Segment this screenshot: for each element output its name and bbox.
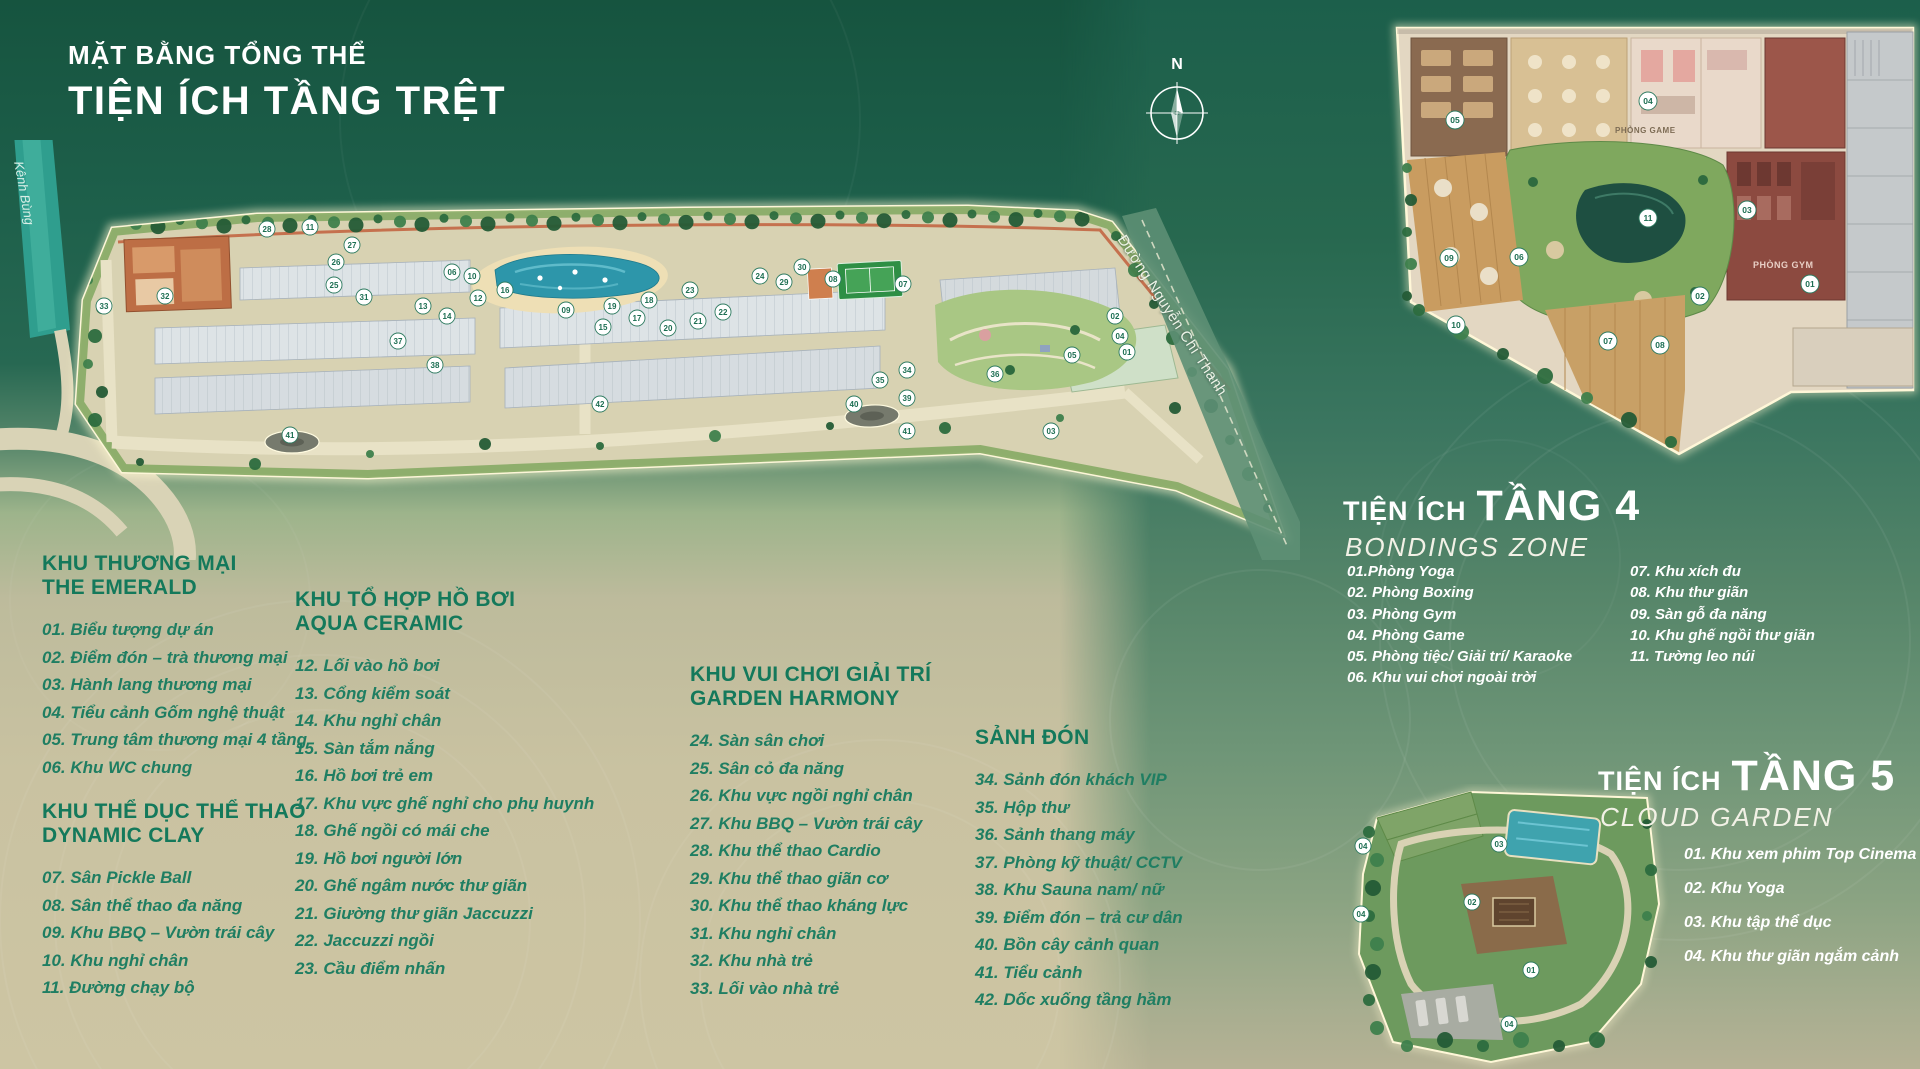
plan-marker-03: 03 <box>1491 836 1507 852</box>
legend-item: 37. Phòng kỹ thuật/ CCTV <box>975 849 1295 877</box>
tree <box>1642 911 1652 921</box>
plan-marker-25: 25 <box>326 277 342 293</box>
plan-marker-04: 04 <box>1639 92 1657 110</box>
tang5-item: 04. Khu thư giãn ngắm cảnh <box>1684 940 1916 974</box>
legend-item: 23. Cầu điểm nhấn <box>295 955 615 983</box>
svg-text:18: 18 <box>645 296 654 305</box>
legend-item: 12. Lối vào hồ bơi <box>295 652 615 680</box>
tree <box>1413 304 1425 316</box>
tree <box>1034 209 1043 218</box>
legend-group-aqua-ceramic: KHU TỔ HỢP HỒ BƠI AQUA CERAMIC 12. Lối v… <box>295 588 615 982</box>
tree <box>836 211 845 220</box>
tree <box>877 213 892 228</box>
tang4-item: 03. Phòng Gym <box>1347 604 1572 625</box>
legend-group-garden-harmony: KHU VUI CHƠI GIẢI TRÍ GARDEN HARMONY 24.… <box>690 663 1010 1002</box>
legend-item-list: 24. Sàn sân chơi25. Sân cỏ đa năng26. Kh… <box>690 727 1010 1002</box>
t4-bottom-room <box>1793 328 1913 386</box>
plan-marker-07: 07 <box>895 276 911 292</box>
tree <box>1645 956 1657 968</box>
plan-marker-39: 39 <box>899 390 915 406</box>
plan-marker-33: 33 <box>96 298 112 314</box>
plan-marker-10: 10 <box>464 268 480 284</box>
plan-marker-36: 36 <box>987 366 1003 382</box>
plan-marker-11: 11 <box>302 219 318 235</box>
plan-marker-29: 29 <box>776 274 792 290</box>
legend-item: 27. Khu BBQ – Vườn trái cây <box>690 810 1010 838</box>
plan-marker-28: 28 <box>259 221 275 237</box>
plan-marker-31: 31 <box>356 289 372 305</box>
svg-text:04: 04 <box>1116 332 1125 341</box>
plan-marker-24: 24 <box>752 268 768 284</box>
tree <box>811 214 826 229</box>
tang5-floor-number: TẦNG 5 <box>1732 752 1896 800</box>
tree <box>902 210 911 219</box>
svg-text:04: 04 <box>1505 1020 1514 1029</box>
legend-item: 32. Khu nhà trẻ <box>690 947 1010 975</box>
tree <box>790 212 802 224</box>
plan-marker-37: 37 <box>390 333 406 349</box>
svg-text:40: 40 <box>850 400 859 409</box>
tree <box>826 422 834 430</box>
legend-item: 21. Giường thư giãn Jaccuzzi <box>295 900 615 928</box>
tree <box>1370 1021 1384 1035</box>
legend-item: 35. Hộp thư <box>975 794 1295 822</box>
plan-marker-41: 41 <box>282 427 298 443</box>
legend-item: 28. Khu thể thao Cardio <box>690 837 1010 865</box>
svg-text:10: 10 <box>1451 320 1461 330</box>
plan-marker-18: 18 <box>641 292 657 308</box>
plan-marker-04: 04 <box>1112 328 1128 344</box>
plan-marker-02: 02 <box>1464 894 1480 910</box>
plan-marker-13: 13 <box>415 298 431 314</box>
ground-floor-site-plan: 3332281127262531373806101213141609151917… <box>0 140 1300 560</box>
legend-item: 39. Điểm đón – trả cư dân <box>975 904 1295 932</box>
plan-marker-12: 12 <box>470 290 486 306</box>
tree <box>724 213 736 225</box>
tree <box>1581 392 1593 404</box>
tree <box>1589 1032 1605 1048</box>
tree <box>704 212 713 221</box>
legend-item: 17. Khu vực ghế nghỉ cho phụ huynh <box>295 790 615 818</box>
tree <box>136 458 144 466</box>
tree <box>547 216 562 231</box>
tree <box>440 214 449 223</box>
plan-marker-09: 09 <box>1440 249 1458 267</box>
svg-text:33: 33 <box>100 302 109 311</box>
svg-text:28: 28 <box>263 225 272 234</box>
plan-marker-20: 20 <box>660 320 676 336</box>
tree <box>374 214 383 223</box>
plan-marker-10: 10 <box>1447 316 1465 334</box>
svg-text:15: 15 <box>599 323 608 332</box>
floor-plan-tang4: PHÒNG GAME PHÒNG GYM <box>1385 0 1920 465</box>
tree <box>1437 1032 1453 1048</box>
t4-gym-label: PHÒNG GYM <box>1753 259 1814 270</box>
plan-marker-15: 15 <box>595 319 611 335</box>
legend-item: 19. Hồ bơi người lớn <box>295 845 615 873</box>
svg-text:20: 20 <box>664 324 673 333</box>
tree <box>1665 436 1677 448</box>
plan-marker-07: 07 <box>1599 332 1617 350</box>
plan-marker-21: 21 <box>690 313 706 329</box>
page-title-line2: TIỆN ÍCH TẦNG TRỆT <box>68 79 506 124</box>
legend-item: 18. Ghế ngồi có mái che <box>295 817 615 845</box>
tang5-item: 03. Khu tập thể dục <box>1684 906 1916 940</box>
plan-marker-01: 01 <box>1119 344 1135 360</box>
svg-text:07: 07 <box>1603 336 1613 346</box>
legend-item: 31. Khu nghỉ chân <box>690 920 1010 948</box>
t4-meeting-room <box>1411 38 1507 156</box>
svg-text:36: 36 <box>991 370 1000 379</box>
tree <box>613 215 628 230</box>
tree <box>939 422 951 434</box>
svg-text:22: 22 <box>719 308 728 317</box>
legend-item: 42. Dốc xuống tầng hầm <box>975 986 1295 1014</box>
plan-marker-05: 05 <box>1064 347 1080 363</box>
legend-item: 22. Jaccuzzi ngồi <box>295 927 615 955</box>
svg-text:25: 25 <box>330 281 339 290</box>
plan-marker-02: 02 <box>1107 308 1123 324</box>
tree <box>242 215 251 224</box>
tree <box>394 216 406 228</box>
svg-text:24: 24 <box>756 272 765 281</box>
legend-item: 16. Hồ bơi trẻ em <box>295 762 615 790</box>
svg-text:29: 29 <box>780 278 789 287</box>
plan-marker-01: 01 <box>1523 962 1539 978</box>
tang4-item: 09. Sàn gỗ đa năng <box>1630 604 1815 625</box>
legend-item: 24. Sàn sân chơi <box>690 727 1010 755</box>
svg-text:30: 30 <box>798 263 807 272</box>
tang4-list-col1: 01.Phòng Yoga02. Phòng Boxing03. Phòng G… <box>1347 561 1572 689</box>
svg-text:10: 10 <box>468 272 477 281</box>
svg-text:11: 11 <box>1644 213 1653 223</box>
tang4-item: 10. Khu ghế ngồi thư giãn <box>1630 625 1815 646</box>
plan-marker-09: 09 <box>558 302 574 318</box>
tree <box>481 216 496 231</box>
plan-marker-06: 06 <box>444 264 460 280</box>
svg-text:08: 08 <box>1655 340 1665 350</box>
page-title-line1: MẶT BẰNG TỔNG THỂ <box>68 40 506 71</box>
plan-marker-16: 16 <box>497 282 513 298</box>
plan-marker-08: 08 <box>1651 336 1669 354</box>
tree <box>1497 348 1509 360</box>
svg-text:41: 41 <box>903 427 912 436</box>
tree <box>1169 402 1181 414</box>
tang4-item: 05. Phòng tiệc/ Giải trí/ Karaoke <box>1347 646 1572 667</box>
tree <box>1401 1040 1413 1052</box>
plan-marker-40: 40 <box>846 396 862 412</box>
svg-text:41: 41 <box>286 431 295 440</box>
svg-text:35: 35 <box>876 376 885 385</box>
tree <box>770 211 779 220</box>
svg-text:01: 01 <box>1123 348 1132 357</box>
svg-text:19: 19 <box>608 302 617 311</box>
plan-marker-03: 03 <box>1738 201 1756 219</box>
legend-item: 36. Sảnh thang máy <box>975 821 1295 849</box>
tree <box>415 217 430 232</box>
svg-text:02: 02 <box>1468 898 1477 907</box>
tang5-list: 01. Khu xem phim Top Cinema02. Khu Yoga0… <box>1684 838 1916 974</box>
legend-item: 33. Lối vào nhà trẻ <box>690 975 1010 1003</box>
tree <box>922 211 934 223</box>
tree <box>328 216 340 228</box>
tree <box>88 329 102 343</box>
svg-text:16: 16 <box>501 286 510 295</box>
tree <box>592 214 604 226</box>
plan-marker-26: 26 <box>328 254 344 270</box>
plan-marker-34: 34 <box>899 362 915 378</box>
svg-text:02: 02 <box>1111 312 1120 321</box>
plan-marker-35: 35 <box>872 372 888 388</box>
tree <box>638 212 647 221</box>
tree <box>1056 414 1064 422</box>
legend-item: 26. Khu vực ngồi nghỉ chân <box>690 782 1010 810</box>
svg-text:08: 08 <box>829 275 838 284</box>
tree <box>658 214 670 226</box>
svg-text:07: 07 <box>899 280 908 289</box>
svg-text:03: 03 <box>1742 205 1752 215</box>
legend-item: 13. Cổng kiểm soát <box>295 680 615 708</box>
plan-marker-30: 30 <box>794 259 810 275</box>
svg-text:26: 26 <box>332 258 341 267</box>
svg-text:09: 09 <box>1444 253 1454 263</box>
tree <box>526 215 538 227</box>
legend-item: 15. Sàn tắm nắng <box>295 735 615 763</box>
compass-north-label: N <box>1132 56 1222 74</box>
svg-text:31: 31 <box>360 293 369 302</box>
plan-marker-23: 23 <box>682 282 698 298</box>
tang4-pretitle: TIỆN ÍCH <box>1343 496 1467 526</box>
svg-text:32: 32 <box>161 292 170 301</box>
tree <box>366 450 374 458</box>
plan-marker-27: 27 <box>344 237 360 253</box>
legend-item: 40. Bồn cây cảnh quan <box>975 931 1295 959</box>
tree <box>856 212 868 224</box>
plan-marker-05: 05 <box>1446 111 1464 129</box>
tree <box>479 438 491 450</box>
legend-item: 29. Khu thể thao giãn cơ <box>690 865 1010 893</box>
tree <box>1054 210 1066 222</box>
plan-marker-22: 22 <box>715 304 731 320</box>
legend-title: KHU TỔ HỢP HỒ BƠI <box>295 588 615 612</box>
svg-text:03: 03 <box>1495 840 1504 849</box>
legend-title: GARDEN HARMONY <box>690 687 1010 711</box>
svg-text:21: 21 <box>694 317 703 326</box>
tang4-subtitle: BONDINGS ZONE <box>1345 532 1589 563</box>
tang4-item: 08. Khu thư giãn <box>1630 582 1815 603</box>
plan-marker-04: 04 <box>1501 1016 1517 1032</box>
tree <box>1370 853 1384 867</box>
plan-marker-32: 32 <box>157 288 173 304</box>
tree <box>1363 826 1375 838</box>
tree <box>572 213 581 222</box>
tang5-title: TIỆN ÍCHTẦNG 5 <box>1598 752 1895 801</box>
svg-text:12: 12 <box>474 294 483 303</box>
plan-marker-03: 03 <box>1043 423 1059 439</box>
legend-item: 34. Sảnh đón khách VIP <box>975 766 1295 794</box>
plan-marker-02: 02 <box>1691 287 1709 305</box>
plan-marker-01: 01 <box>1801 275 1819 293</box>
legend-item: 25. Sân cỏ đa năng <box>690 755 1010 783</box>
tree <box>968 209 977 218</box>
plan-marker-38: 38 <box>427 357 443 373</box>
page-title: MẶT BẰNG TỔNG THỂ TIỆN ÍCH TẦNG TRỆT <box>68 40 506 124</box>
legend-title: KHU THƯƠNG MẠI <box>42 552 362 576</box>
tree <box>217 219 232 234</box>
tang4-item: 04. Phòng Game <box>1347 625 1572 646</box>
plan-marker-08: 08 <box>825 271 841 287</box>
tree <box>1009 212 1024 227</box>
tree <box>679 215 694 230</box>
legend-item: 20. Ghế ngâm nước thư giãn <box>295 872 615 900</box>
tree <box>460 215 472 227</box>
svg-text:37: 37 <box>394 337 403 346</box>
legend-title: AQUA CERAMIC <box>295 612 615 636</box>
tang4-floor-number: TẦNG 4 <box>1477 482 1641 530</box>
tree <box>283 218 298 233</box>
tree <box>1370 937 1384 951</box>
svg-text:05: 05 <box>1450 115 1460 125</box>
svg-text:34: 34 <box>903 366 912 375</box>
tree <box>1513 1032 1529 1048</box>
svg-text:27: 27 <box>348 241 357 250</box>
tree <box>988 211 1000 223</box>
tree <box>1402 227 1412 237</box>
legend-item: 41. Tiểu cảnh <box>975 959 1295 987</box>
tang4-item: 06. Khu vui chơi ngoài trời <box>1347 667 1572 688</box>
tang5-subtitle: CLOUD GARDEN <box>1600 802 1833 833</box>
legend-item-list: 34. Sảnh đón khách VIP35. Hộp thư36. Sản… <box>975 766 1295 1014</box>
svg-text:05: 05 <box>1068 351 1077 360</box>
svg-text:01: 01 <box>1805 279 1815 289</box>
t4-dining-deck <box>1511 38 1627 154</box>
legend-group-sanh-don: SẢNH ĐÓN 34. Sảnh đón khách VIP35. Hộp t… <box>975 726 1295 1014</box>
tree <box>83 359 93 369</box>
tree <box>349 218 364 233</box>
t5-pool <box>1504 809 1600 864</box>
legend-item: 30. Khu thể thao kháng lực <box>690 892 1010 920</box>
tang4-item: 01.Phòng Yoga <box>1347 561 1572 582</box>
plan-marker-04: 04 <box>1355 838 1371 854</box>
svg-text:14: 14 <box>443 312 452 321</box>
tree <box>1645 864 1657 876</box>
plan-marker-17: 17 <box>629 310 645 326</box>
tree <box>1537 368 1553 384</box>
tang5-item: 01. Khu xem phim Top Cinema <box>1684 838 1916 872</box>
svg-text:13: 13 <box>419 302 428 311</box>
svg-text:11: 11 <box>306 223 315 232</box>
legend-item: 38. Khu Sauna nam/ nữ <box>975 876 1295 904</box>
svg-text:23: 23 <box>686 286 695 295</box>
svg-text:39: 39 <box>903 394 912 403</box>
tree <box>1621 412 1637 428</box>
svg-text:04: 04 <box>1359 842 1368 851</box>
plan-marker-41: 41 <box>899 423 915 439</box>
tang4-item: 07. Khu xích đu <box>1630 561 1815 582</box>
tang5-pretitle: TIỆN ÍCH <box>1598 766 1722 796</box>
tree <box>745 214 760 229</box>
svg-text:04: 04 <box>1643 96 1653 106</box>
plan-marker-14: 14 <box>439 308 455 324</box>
tree <box>249 458 261 470</box>
tree <box>1402 163 1412 173</box>
masterplan-poster: MẶT BẰNG TỔNG THỂ TIỆN ÍCH TẦNG TRỆT N <box>0 0 1920 1069</box>
tree <box>1363 994 1375 1006</box>
legend-title: KHU VUI CHƠI GIẢI TRÍ <box>690 663 1010 687</box>
tang4-list-col2: 07. Khu xích đu08. Khu thư giãn09. Sàn g… <box>1630 561 1815 667</box>
tang5-item: 02. Khu Yoga <box>1684 872 1916 906</box>
tang4-item: 02. Phòng Boxing <box>1347 582 1572 603</box>
svg-text:06: 06 <box>448 268 457 277</box>
tree <box>596 442 604 450</box>
svg-text:01: 01 <box>1527 966 1536 975</box>
svg-text:03: 03 <box>1047 427 1056 436</box>
tree <box>96 386 108 398</box>
plan-marker-19: 19 <box>604 298 620 314</box>
svg-text:04: 04 <box>1357 910 1366 919</box>
compass-rose-icon <box>1142 78 1212 148</box>
legend-title: SẢNH ĐÓN <box>975 726 1295 750</box>
commercial-center-building <box>124 236 231 312</box>
svg-text:09: 09 <box>562 306 571 315</box>
t5-center-deck <box>1461 876 1567 954</box>
t4-game-label: PHÒNG GAME <box>1615 126 1676 135</box>
svg-text:42: 42 <box>596 400 605 409</box>
tang4-title: TIỆN ÍCHTẦNG 4 <box>1343 482 1640 531</box>
tree <box>1365 964 1381 980</box>
plan-marker-11: 11 <box>1639 209 1657 227</box>
tree <box>943 213 958 228</box>
svg-text:17: 17 <box>633 314 642 323</box>
legend-item: 14. Khu nghỉ chân <box>295 707 615 735</box>
tang4-item: 11. Tường leo núi <box>1630 646 1815 667</box>
t5-plaza <box>1401 984 1503 1040</box>
plan-marker-06: 06 <box>1510 248 1528 266</box>
svg-text:06: 06 <box>1514 252 1524 262</box>
tree <box>1477 1040 1489 1052</box>
legend-item-list: 12. Lối vào hồ bơi13. Cổng kiểm soát14. … <box>295 652 615 982</box>
tree <box>1402 291 1412 301</box>
tree <box>1553 1040 1565 1052</box>
plan-marker-42: 42 <box>592 396 608 412</box>
svg-text:02: 02 <box>1695 291 1705 301</box>
tree <box>1405 194 1417 206</box>
tree <box>506 213 515 222</box>
tree <box>1365 880 1381 896</box>
tree <box>1405 258 1417 270</box>
tree <box>709 430 721 442</box>
svg-text:38: 38 <box>431 361 440 370</box>
plan-marker-04: 04 <box>1353 906 1369 922</box>
